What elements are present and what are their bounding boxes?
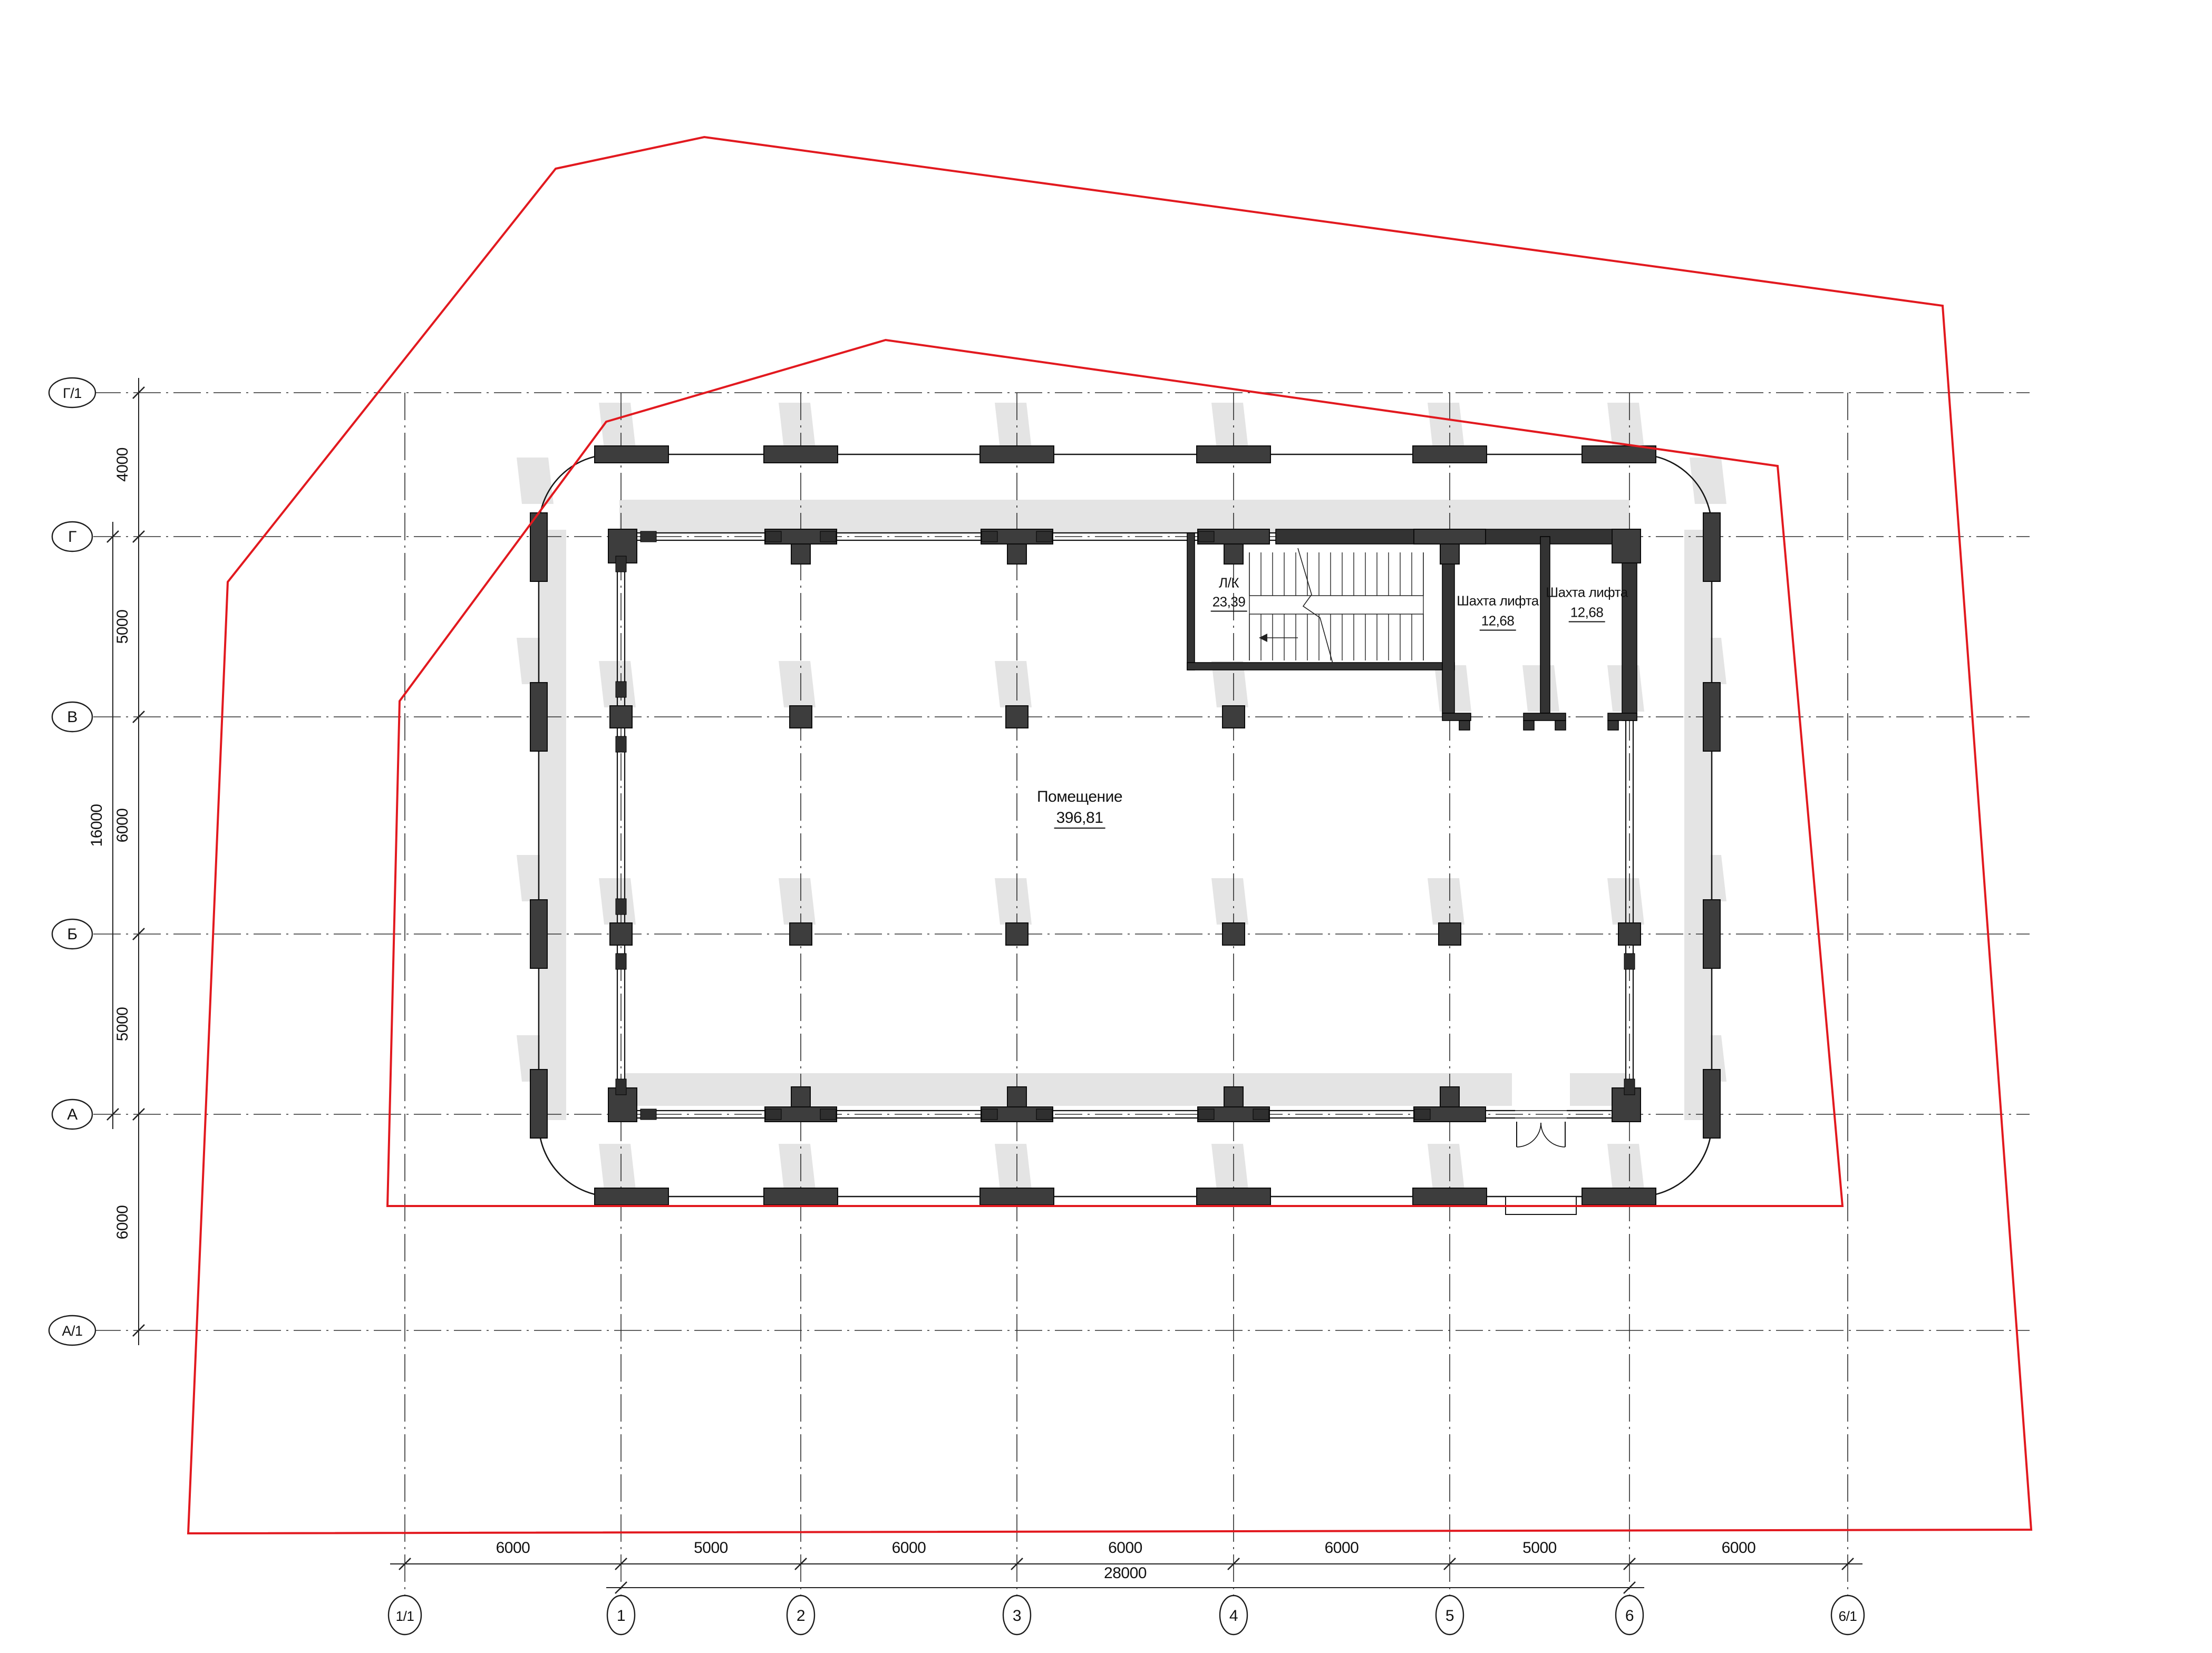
axis-bubble-row-label-Г: Г (68, 528, 76, 546)
edge-column-top-6 (1582, 446, 1656, 463)
mullion-cap-bottom-1r (641, 1109, 656, 1120)
edge-column-bottom-3 (980, 1188, 1054, 1205)
door-swing-right (1541, 1123, 1565, 1147)
mullion-cap-top-1r (641, 531, 656, 542)
dim-text-left-4: 6000 (114, 1205, 131, 1240)
dim-text-left-3: 5000 (114, 1007, 131, 1042)
edge-column-left-1 (530, 513, 547, 581)
axis-bubble-col-label-6: 6 (1625, 1607, 1634, 1625)
room-stair-area: 23,39 (1211, 594, 1247, 610)
edge-column-top-2 (764, 446, 838, 463)
axis-bubble-layer: Г/1ГВБАА/11/11234566/1 (49, 378, 1864, 1635)
edge-column-bottom-2 (764, 1188, 838, 1205)
mullion-cap-top-3r (1036, 531, 1052, 542)
axis-bubble-row-label-А: А (67, 1106, 77, 1123)
mullion-cap-left-1d (616, 556, 626, 572)
dim-text-left-0: 4000 (114, 448, 131, 482)
t-column-top-stem-2 (791, 544, 810, 564)
shadow-patch-bottom-col1 (599, 1144, 636, 1190)
shadow-patch-bottom-col2 (779, 1144, 816, 1190)
room-stair-name-text: Л/К (1219, 575, 1239, 591)
door-swing-left (1517, 1123, 1541, 1147)
interior-column-4-3 (1223, 923, 1245, 945)
mullion-cap-left-3u (616, 899, 626, 915)
shadow-strip-right (1684, 530, 1711, 1120)
floor-plan-canvas: 6000500060006000600050006000280004000500… (0, 0, 2212, 1653)
stair-direction-arrowhead (1259, 634, 1267, 642)
core-wall-B-seg3 (1608, 713, 1637, 721)
edge-column-bottom-6 (1582, 1188, 1656, 1205)
edge-column-bottom-1 (595, 1188, 668, 1205)
room-main-name-text: Помещение (1037, 788, 1122, 805)
shadow-patch-column-2-3 (779, 878, 816, 925)
shadow-patch-bottom-col6 (1607, 1144, 1644, 1190)
room-lift1-area-text: 12,68 (1480, 613, 1516, 631)
shadow-patch-column-3-2 (995, 661, 1032, 707)
edge-column-right-2 (1703, 683, 1720, 751)
site-boundary-outer (188, 137, 2031, 1533)
axis-bubble-col-label-3: 3 (1013, 1607, 1021, 1625)
entrance-door-layer (1506, 1111, 1576, 1214)
t-column-top-stem-5 (1440, 544, 1459, 564)
axis-bubble-row-label-А/1: А/1 (62, 1323, 82, 1339)
shadow-band-top (619, 500, 1629, 532)
room-lift2-name: Шахта лифта (1546, 585, 1627, 601)
room-lift1-name-text: Шахта лифта (1457, 593, 1538, 609)
shadow-patch-right-row2 (1690, 638, 1726, 684)
room-main-area-text: 396,81 (1054, 809, 1105, 829)
lift-divider-wall (1540, 537, 1550, 713)
mullion-cap-bottom-4r (1253, 1109, 1269, 1120)
stair-wall-left (1187, 533, 1195, 670)
dim-text-bottom-0: 6000 (496, 1539, 530, 1557)
room-lift2-area: 12,68 (1569, 605, 1605, 621)
mullion-cap-left-3d (616, 954, 626, 969)
interior-column-2-2 (790, 706, 812, 728)
grid-layer (93, 393, 2030, 1595)
mullion-cap-bottom-2r (820, 1109, 836, 1120)
interior-column-4-2 (1223, 706, 1245, 728)
edge-column-top-1 (595, 446, 668, 463)
room-stair-name: Л/К (1219, 575, 1239, 591)
floor-plan-drawing: 6000500060006000600050006000280004000500… (0, 0, 2212, 1653)
dim-text-left-1: 5000 (114, 610, 131, 644)
mullion-cap-right-Bd (1624, 954, 1635, 969)
shadow-patch-left-row3 (517, 855, 554, 901)
edge-column-top-4 (1197, 446, 1270, 463)
mullion-cap-bottom-3r (1036, 1109, 1052, 1120)
shadow-patch-left-row1 (517, 458, 554, 504)
site-boundary-layer (188, 137, 2031, 1533)
t-column-bottom-stem-3 (1007, 1087, 1026, 1107)
mullion-cap-right-Au (1624, 1079, 1635, 1095)
shadow-patch-top-col2 (779, 403, 816, 449)
edge-column-right-3 (1703, 900, 1720, 968)
edge-column-left-4 (530, 1069, 547, 1138)
mullion-cap-bottom-2l (765, 1109, 781, 1120)
room-lift2-area-text: 12,68 (1569, 605, 1605, 623)
interior-column-2-3 (790, 923, 812, 945)
core-wall-foot-a (1459, 721, 1470, 730)
axis-bubble-col-label-1: 1 (617, 1607, 625, 1625)
mullion-cap-bottom-5l (1414, 1109, 1430, 1120)
edge-column-right-4 (1703, 1069, 1720, 1138)
mullion-cap-top-3l (982, 531, 997, 542)
shadow-patch-bottom-col5 (1428, 1144, 1464, 1190)
interior-column-5-3 (1439, 923, 1461, 945)
shadow-patch-top-col5 (1428, 403, 1464, 449)
edge-column-bottom-4 (1197, 1188, 1270, 1205)
t-column-top-5 (1414, 529, 1486, 544)
shadow-patch-top-col3 (995, 403, 1032, 449)
dim-text-bottom-1: 5000 (694, 1539, 728, 1557)
t-column-bottom-stem-4 (1224, 1087, 1243, 1107)
t-column-bottom-stem-2 (791, 1087, 810, 1107)
mullion-cap-bottom-4l (1198, 1109, 1214, 1120)
dim-text-bottom-total: 28000 (1104, 1564, 1147, 1582)
axis-bubble-col-label-6/1: 6/1 (1839, 1608, 1857, 1624)
corner-column-6-G (1612, 529, 1641, 563)
axis-bubble-col-label-2: 2 (797, 1607, 805, 1625)
interior-column-3-2 (1006, 706, 1028, 728)
axis-bubble-row-label-Г/1: Г/1 (63, 385, 82, 401)
mullion-cap-top-2r (820, 531, 836, 542)
dim-text-bottom-5: 5000 (1522, 1539, 1557, 1557)
mullion-cap-top-4l (1198, 531, 1214, 542)
shadow-patch-column-2-2 (779, 661, 816, 707)
dim-text-bottom-6: 6000 (1722, 1539, 1756, 1557)
mullion-cap-left-4u (616, 1079, 626, 1095)
room-main-name: Помещение (1037, 788, 1122, 806)
axis-bubble-col-label-4: 4 (1229, 1607, 1238, 1625)
t-column-bottom-stem-5 (1440, 1087, 1459, 1107)
shadow-patch-top-col4 (1211, 403, 1248, 449)
wall-right-core-solid (1622, 537, 1637, 721)
core-wall-foot-b (1524, 721, 1534, 730)
mullion-cap-left-2d (616, 736, 626, 752)
stair-wall-bottom (1187, 663, 1454, 670)
wall-column-1-V (610, 706, 632, 728)
room-stair-area-text: 23,39 (1211, 594, 1247, 612)
room-lift1-name: Шахта лифта (1457, 593, 1538, 609)
t-column-top-stem-3 (1007, 544, 1026, 564)
dim-text-left-total: 16000 (88, 804, 105, 847)
edge-column-top-5 (1413, 446, 1487, 463)
edge-column-left-2 (530, 683, 547, 751)
stair-break-line (1298, 548, 1333, 663)
room-main-area: 396,81 (1054, 809, 1105, 827)
edge-column-left-3 (530, 900, 547, 968)
shadow-patch-column-3-3 (995, 878, 1032, 925)
edge-column-top-3 (980, 446, 1054, 463)
shadow-patch-bottom-col3 (995, 1144, 1032, 1190)
dim-text-bottom-3: 6000 (1108, 1539, 1142, 1557)
axis-bubble-col-label-1/1: 1/1 (396, 1608, 414, 1624)
dim-text-bottom-4: 6000 (1325, 1539, 1359, 1557)
mullion-cap-left-2u (616, 682, 626, 697)
core-wall-B-seg1 (1442, 713, 1471, 721)
edge-column-bottom-5 (1413, 1188, 1487, 1205)
dimension-layer: 6000500060006000600050006000280004000500… (88, 378, 1862, 1593)
stair-layer (1249, 548, 1423, 663)
room-lift1-area: 12,68 (1480, 613, 1516, 629)
shadow-patch-column-5-3 (1428, 878, 1464, 925)
t-column-top-stem-4 (1224, 544, 1243, 564)
core-wall-B-seg2 (1524, 713, 1566, 721)
shadow-band-bottom-left-of-door (625, 1073, 1512, 1106)
room-lift2-name-text: Шахта лифта (1546, 585, 1627, 600)
mullion-cap-bottom-3l (982, 1109, 997, 1120)
edge-column-right-1 (1703, 513, 1720, 581)
axis-bubble-col-label-5: 5 (1445, 1607, 1454, 1625)
interior-column-3-3 (1006, 923, 1028, 945)
shadow-patch-bottom-col4 (1211, 1144, 1248, 1190)
shadow-patch-left-row2 (517, 638, 554, 684)
wall-column-6-B (1618, 923, 1641, 945)
wall-column-1-B (610, 923, 632, 945)
dim-text-left-2: 6000 (114, 809, 131, 843)
core-wall-foot-c (1555, 721, 1566, 730)
shadow-strip-left (540, 530, 566, 1120)
axis-bubble-row-label-Б: Б (67, 926, 77, 943)
shadow-patch-column-4-3 (1211, 878, 1248, 925)
shadow-patch-right-row3 (1690, 855, 1726, 901)
axis-bubble-row-label-В: В (67, 708, 77, 726)
dim-text-bottom-2: 6000 (892, 1539, 926, 1557)
mullion-cap-top-2l (765, 531, 781, 542)
core-wall-foot-d (1608, 721, 1618, 730)
